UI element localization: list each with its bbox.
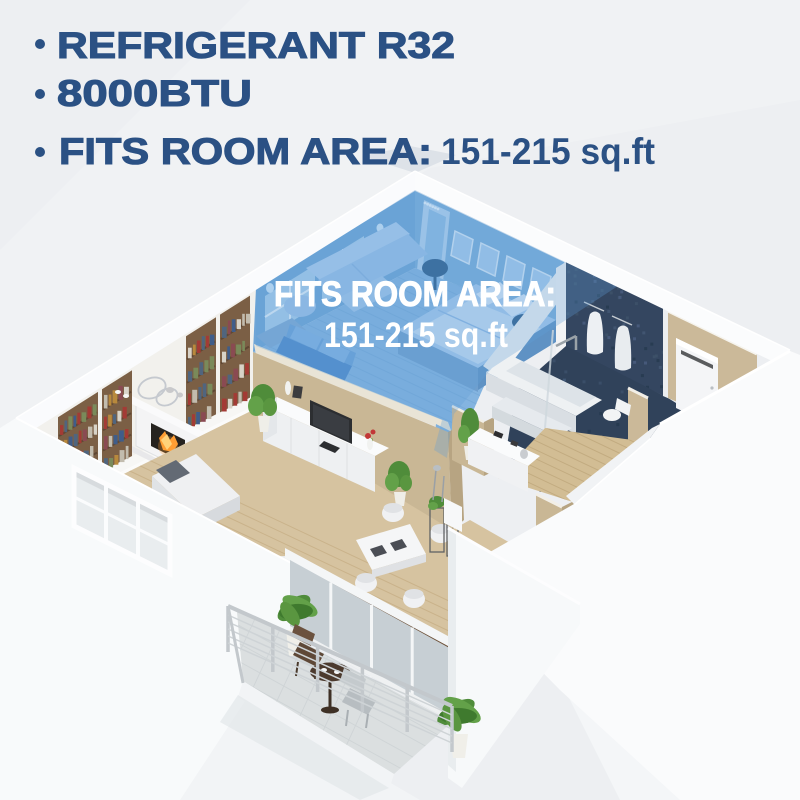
- svg-text:FITS ROOM AREA:: FITS ROOM AREA:: [59, 131, 432, 172]
- svg-text:8000BTU: 8000BTU: [57, 73, 252, 114]
- svg-text:151-215 sq.ft: 151-215 sq.ft: [324, 316, 508, 355]
- svg-text:FITS ROOM AREA:: FITS ROOM AREA:: [274, 275, 556, 314]
- svg-text:151-215 sq.ft: 151-215 sq.ft: [441, 131, 655, 172]
- svg-text:REFRIGERANT R32: REFRIGERANT R32: [57, 25, 455, 66]
